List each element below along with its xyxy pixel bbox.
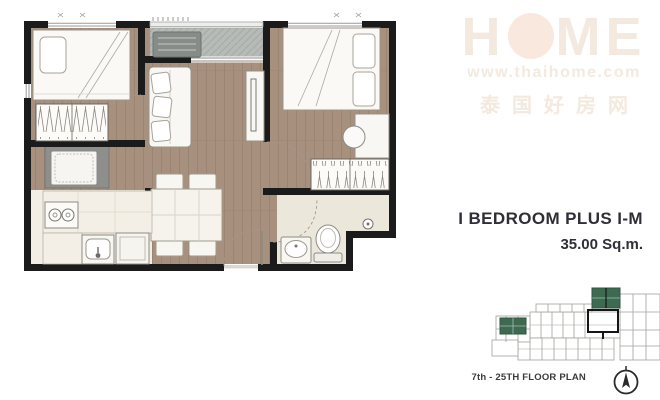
side-window bbox=[24, 84, 31, 98]
bedroom1-window bbox=[48, 21, 116, 28]
unit-info: I BEDROOM PLUS I-M 35.00 Sq.m. bbox=[458, 209, 643, 253]
pillow bbox=[40, 37, 66, 73]
watermark-tagline: 泰国好房网 bbox=[448, 89, 660, 118]
wardrobe-bedroom2 bbox=[311, 159, 389, 190]
floor-plan-label: 7th - 25TH FLOOR PLAN bbox=[460, 372, 586, 383]
pillow bbox=[353, 72, 375, 106]
kitchen-sink bbox=[82, 235, 114, 264]
balcony-sliding-door bbox=[191, 57, 263, 63]
washing-machine bbox=[51, 151, 97, 185]
stove bbox=[45, 202, 78, 228]
bedroom2-window bbox=[288, 21, 362, 28]
wardrobe-bedroom1 bbox=[36, 104, 108, 141]
balcony bbox=[153, 32, 201, 57]
exterior-notch bbox=[353, 238, 396, 271]
base-cabinet bbox=[43, 233, 82, 264]
unit-title: I BEDROOM PLUS I-M bbox=[458, 209, 643, 229]
bathroom-sink bbox=[281, 237, 311, 263]
watermark-brand: HME bbox=[448, 10, 660, 64]
dining-chair bbox=[156, 174, 183, 190]
watermark: HME www.thaihome.com 泰国好房网 bbox=[448, 10, 660, 118]
building-key-plan bbox=[488, 282, 660, 370]
balcony-rail bbox=[150, 17, 263, 27]
tv-console bbox=[246, 71, 264, 141]
dining-chair bbox=[189, 240, 216, 256]
kitchen bbox=[43, 191, 152, 264]
dining-chair bbox=[156, 240, 183, 256]
toilet bbox=[314, 225, 342, 262]
unit-area: 35.00 Sq.m. bbox=[458, 236, 643, 253]
shower-head-icon bbox=[363, 219, 373, 229]
pillow bbox=[353, 34, 375, 68]
dishwasher bbox=[116, 233, 149, 264]
entrance-threshold bbox=[224, 265, 258, 269]
floorplan-drawing bbox=[0, 0, 430, 300]
dimension-ticks bbox=[58, 13, 361, 17]
watermark-logo-o-icon bbox=[508, 13, 554, 59]
floorplan-sheet: HME www.thaihome.com 泰国好房网 bbox=[0, 0, 660, 400]
watermark-url: www.thaihome.com bbox=[448, 64, 660, 82]
compass-icon bbox=[611, 363, 641, 397]
dining-chair bbox=[189, 174, 216, 190]
sofa bbox=[149, 67, 191, 147]
stool bbox=[343, 126, 365, 148]
